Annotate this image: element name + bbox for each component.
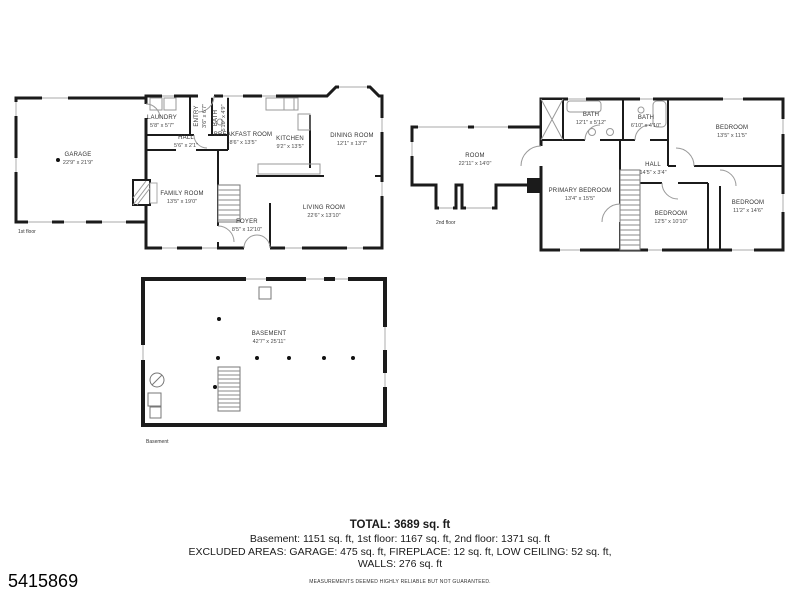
- room-label-family-room: FAMILY ROOM13'5" x 19'0": [160, 191, 203, 205]
- room-dims: 8'6" x 13'5": [214, 139, 272, 146]
- room-label-living-room: LIVING ROOM22'6" x 13'10": [303, 205, 345, 219]
- room-name: HALL: [639, 162, 666, 170]
- walls-area-text: WALLS: 276 sq. ft: [0, 558, 800, 571]
- room-dims: 5'8" x 5'7": [147, 122, 177, 129]
- room-name: GARAGE: [63, 152, 93, 160]
- room-label-bath: BATH5'10" x 4'9": [213, 104, 227, 131]
- room-label-kitchen: KITCHEN9'2" x 13'5": [276, 136, 304, 150]
- area-summary: TOTAL: 3689 sq. ft Basement: 1151 sq. ft…: [0, 519, 800, 585]
- room-dims: 11'2" x 14'6": [732, 207, 764, 214]
- room-label-room: ROOM22'11" x 14'0": [459, 153, 492, 167]
- exterior-walls: [143, 279, 385, 425]
- basement-plan: BASEMENT42'7" x 25'11" Basement: [140, 275, 390, 447]
- room-dims: 3'6" x 6'7": [201, 104, 208, 128]
- room-name: FAMILY ROOM: [160, 191, 203, 199]
- room-label-hall: HALL5'6" x 2'1": [174, 135, 198, 149]
- room-name: LAUNDRY: [147, 115, 177, 123]
- room-name: LIVING ROOM: [303, 205, 345, 213]
- room-label-bedroom-right: BEDROOM11'2" x 14'6": [732, 200, 764, 214]
- room-name: ENTRY: [194, 104, 202, 128]
- room-name: PRIMARY BEDROOM: [549, 188, 612, 196]
- disclaimer-text: MEASUREMENTS DEEMED HIGHLY RELIABLE BUT …: [0, 579, 800, 585]
- room-dims: 12'1" x 5'12": [576, 119, 606, 126]
- room-label-laundry: LAUNDRY5'8" x 5'7": [147, 115, 177, 129]
- room-name: BEDROOM: [716, 125, 748, 133]
- room-dims: 12'1" x 13'7": [330, 140, 374, 147]
- room-label-dining-room: DINING ROOM12'1" x 13'7": [330, 133, 374, 147]
- room-label-bath-1: BATH12'1" x 5'12": [576, 112, 606, 126]
- total-area-text: TOTAL: 3689 sq. ft: [0, 519, 800, 531]
- room-dims: 5'6" x 2'1": [174, 142, 198, 149]
- room-name: FOYER: [232, 219, 262, 227]
- second-floor-plan: ROOM22'11" x 14'0" BATH12'1" x 5'12" BAT…: [410, 94, 790, 256]
- room-dims: 22'6" x 13'10": [303, 212, 345, 219]
- room-name: ROOM: [459, 153, 492, 161]
- room-name: BASEMENT: [252, 331, 287, 339]
- fireplace-icon: [133, 180, 157, 205]
- room-name: HALL: [174, 135, 198, 143]
- room-label-garage: GARAGE22'9" x 21'9": [63, 152, 93, 166]
- room-label-foyer: FOYER8'5" x 12'10": [232, 219, 262, 233]
- room-name: BEDROOM: [732, 200, 764, 208]
- room-dims: 22'9" x 21'9": [63, 159, 93, 166]
- room-dims: 12'5" x 10'10": [654, 218, 687, 225]
- chimney-icon: [527, 178, 541, 193]
- room-name: BATH: [576, 112, 606, 120]
- room-dims: 9'2" x 13'5": [276, 143, 304, 150]
- room-label-hall: HALL14'5" x 3'4": [639, 162, 666, 176]
- room-name: BATH: [213, 104, 221, 131]
- floor-areas-text: Basement: 1151 sq. ft, 1st floor: 1167 s…: [0, 533, 800, 546]
- room-label-bedroom-top-right: BEDROOM13'5" x 11'5": [716, 125, 748, 139]
- room-label-bath-2: BATH6'10" x 4'10": [631, 115, 661, 129]
- excluded-areas-text: EXCLUDED AREAS: GARAGE: 475 sq. ft, FIRE…: [0, 546, 800, 559]
- room-dims: 13'5" x 19'0": [160, 198, 203, 205]
- room-name: KITCHEN: [276, 136, 304, 144]
- room-dims: 13'4" x 15'5": [549, 195, 612, 202]
- basement-drawing: [140, 275, 390, 447]
- stairs-icon: [620, 170, 640, 250]
- garage-center-dot: [56, 158, 60, 162]
- closet-x-icon: [541, 99, 563, 140]
- room-dims: 22'11" x 14'0": [459, 160, 492, 167]
- room-dims: 6'10" x 4'10": [631, 122, 661, 129]
- room-dims: 5'10" x 4'9": [220, 104, 227, 131]
- room-dims: 42'7" x 25'11": [252, 338, 287, 345]
- room-label-bedroom-middle: BEDROOM12'5" x 10'10": [654, 211, 687, 225]
- room-dims: 8'5" x 12'10": [232, 226, 262, 233]
- room-label-primary-bedroom: PRIMARY BEDROOM13'4" x 15'5": [549, 188, 612, 202]
- floor-tag-basement: Basement: [146, 439, 169, 445]
- room-name: DINING ROOM: [330, 133, 374, 141]
- listing-id: 5415869: [8, 571, 78, 592]
- room-dims: 14'5" x 3'4": [639, 169, 666, 176]
- room-dims: 13'5" x 11'5": [716, 132, 748, 139]
- stairs-icon: [218, 367, 240, 411]
- stairs-icon: [218, 185, 240, 222]
- room-name: BEDROOM: [654, 211, 687, 219]
- room-name: BREAKFAST ROOM: [214, 132, 272, 140]
- room-name: BATH: [631, 115, 661, 123]
- room-label-basement: BASEMENT42'7" x 25'11": [252, 331, 287, 345]
- room-label-entry: ENTRY3'6" x 6'7": [194, 104, 208, 128]
- floor-tag-first: 1st floor: [18, 229, 36, 235]
- room-label-breakfast-room: BREAKFAST ROOM8'6" x 13'5": [214, 132, 272, 146]
- floor-tag-second: 2nd floor: [436, 220, 455, 226]
- first-floor-plan: GARAGE22'9" x 21'9" LAUNDRY5'8" x 5'7" E…: [14, 86, 386, 254]
